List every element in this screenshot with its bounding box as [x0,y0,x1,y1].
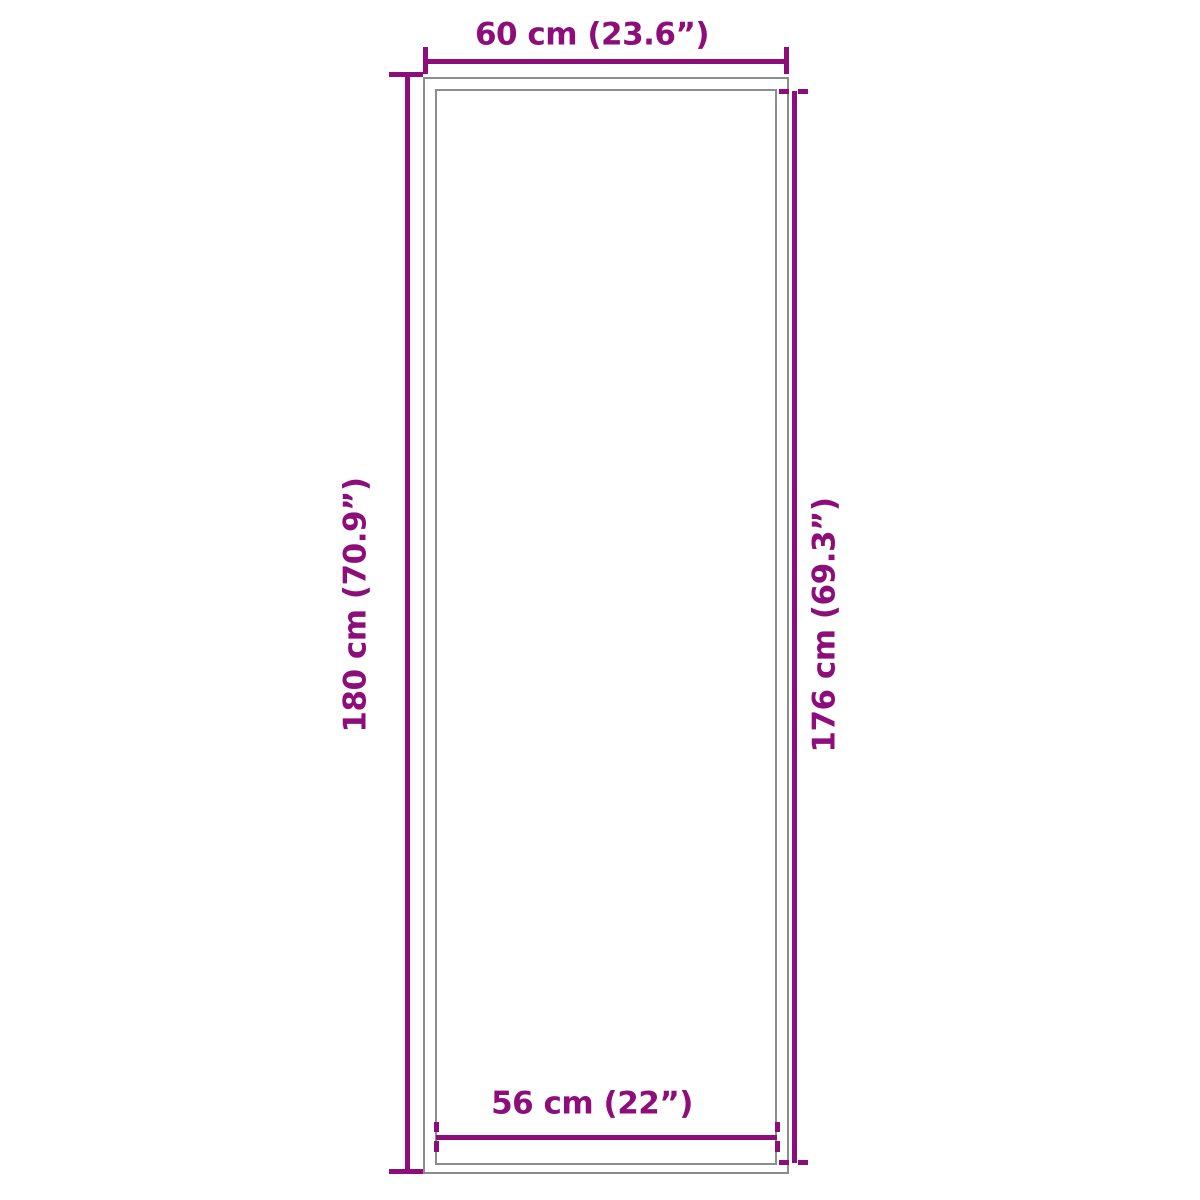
inner-width-dashed-tick-right [775,1122,780,1132]
outer-width-tick-right [784,47,789,74]
outer-height-dimension-line [405,74,410,1172]
inner-width-dimension-line [436,1135,777,1140]
inner-height-dashed-tick-bottom [798,1160,808,1165]
outer-height-tick-top [389,72,423,77]
inner-width-dashed-tick-left [434,1122,439,1132]
inner-height-dashed-tick-top [779,89,789,94]
inner-width-dashed-tick-right [775,1141,780,1152]
outer-width-tick-left [423,47,428,74]
mat-inner-outline [435,89,777,1165]
outer-width-dimension-line [423,59,789,64]
dimension-diagram: 60 cm (23.6”) 180 cm (70.9”) 176 cm (69.… [0,0,1200,1200]
inner-height-dashed-tick-top [798,89,808,94]
inner-width-dashed-tick-left [434,1141,439,1152]
outer-height-label: 180 cm (70.9”) [341,477,372,732]
inner-height-label: 176 cm (69.3”) [810,497,841,752]
inner-width-label: 56 cm (22”) [491,1089,693,1120]
inner-height-dashed-tick-bottom [779,1160,789,1165]
inner-height-dimension-line [792,91,797,1163]
outer-height-tick-bottom [389,1169,423,1174]
outer-width-label: 60 cm (23.6”) [475,20,709,51]
